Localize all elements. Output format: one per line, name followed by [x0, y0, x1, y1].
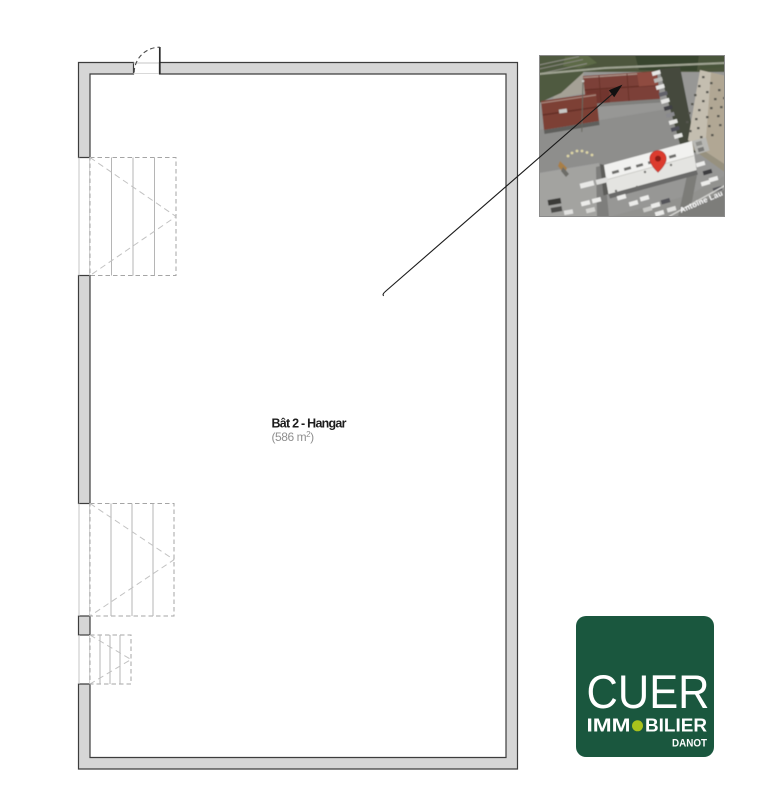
- svg-text:CUER: CUER: [587, 666, 710, 719]
- svg-text:BILIER: BILIER: [645, 716, 707, 736]
- svg-text:Bât 2 - Hangar: Bât 2 - Hangar: [272, 417, 347, 431]
- svg-text:IMM: IMM: [587, 716, 631, 736]
- svg-text:DANOT: DANOT: [672, 738, 707, 750]
